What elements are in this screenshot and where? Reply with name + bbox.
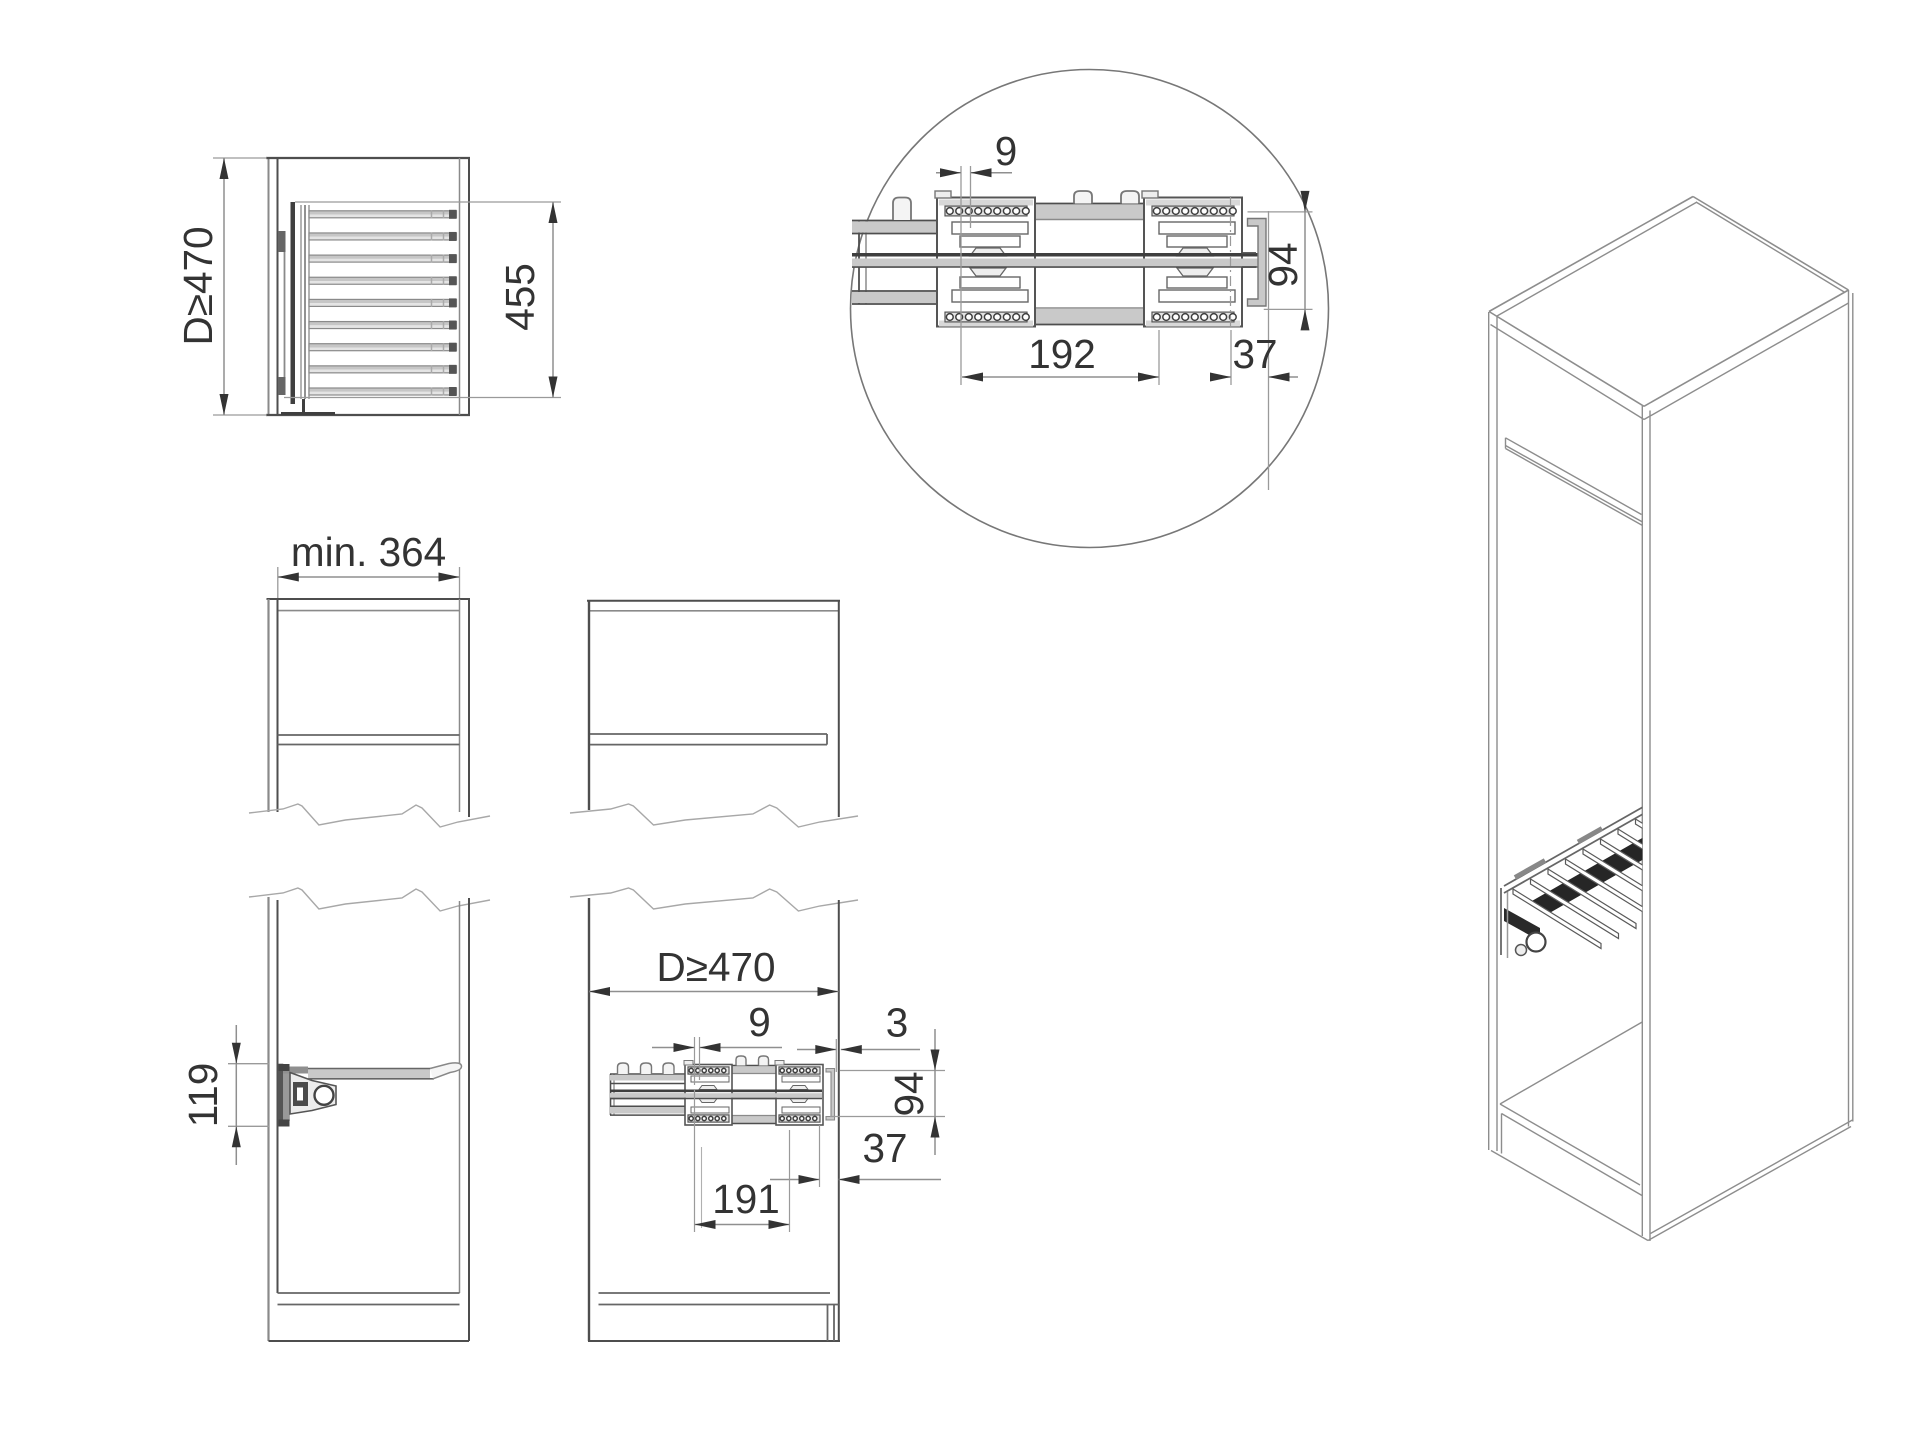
svg-text:119: 119 — [180, 1063, 226, 1128]
svg-text:37: 37 — [862, 1125, 907, 1171]
svg-text:min. 364: min. 364 — [291, 529, 446, 575]
svg-text:37: 37 — [1232, 331, 1277, 377]
svg-text:D≥470: D≥470 — [175, 226, 221, 345]
svg-text:94: 94 — [1260, 242, 1306, 287]
svg-text:9: 9 — [748, 999, 771, 1045]
svg-text:3: 3 — [886, 1000, 909, 1046]
svg-text:D≥470: D≥470 — [656, 944, 775, 990]
svg-text:9: 9 — [995, 128, 1018, 174]
svg-text:192: 192 — [1028, 331, 1096, 377]
svg-text:191: 191 — [712, 1176, 780, 1222]
svg-text:94: 94 — [886, 1071, 932, 1116]
svg-text:455: 455 — [497, 263, 543, 331]
